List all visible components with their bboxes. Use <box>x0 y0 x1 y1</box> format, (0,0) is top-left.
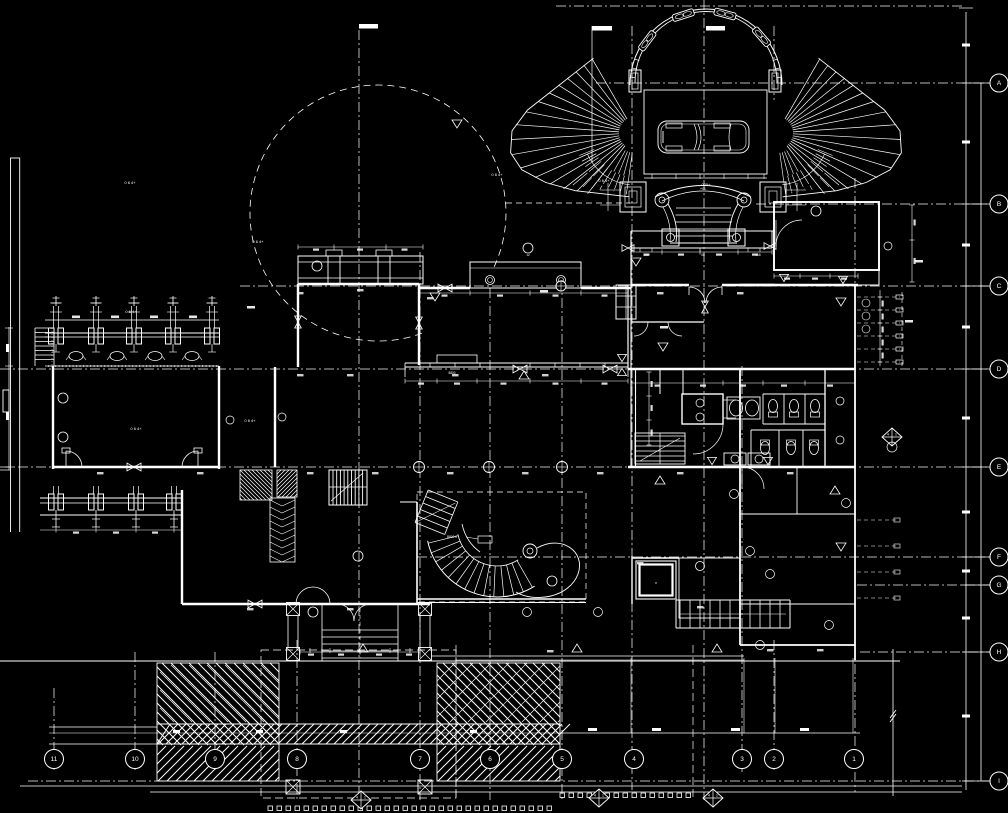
svg-text:0 6 4+: 0 6 4+ <box>244 418 256 423</box>
svg-text:5: 5 <box>560 756 564 763</box>
svg-text:B800 0: B800 0 <box>447 535 457 539</box>
svg-text:0 6 4+: 0 6 4+ <box>125 309 137 314</box>
svg-text:v: v <box>655 580 657 585</box>
svg-text:1: 1 <box>364 796 366 800</box>
svg-text:1: 1 <box>895 433 897 437</box>
svg-text:4: 4 <box>356 796 358 800</box>
svg-text:D: D <box>997 366 1002 373</box>
svg-text:G: G <box>996 582 1001 589</box>
svg-text:6: 6 <box>488 756 492 763</box>
svg-text:E: E <box>997 464 1002 471</box>
svg-text:F: F <box>997 554 1001 561</box>
svg-text:+01: +01 <box>700 187 706 191</box>
svg-text:1: 1 <box>602 794 604 798</box>
svg-text:0 6 4+: 0 6 4+ <box>491 172 503 177</box>
svg-text:1: 1 <box>716 794 718 798</box>
svg-text:A: A <box>997 80 1002 87</box>
svg-text:C: C <box>997 283 1002 290</box>
svg-text:0 6 4+: 0 6 4+ <box>124 180 136 185</box>
svg-text:B: B <box>997 201 1001 208</box>
svg-text:10: 10 <box>131 756 139 763</box>
svg-text:I: I <box>998 778 1000 785</box>
svg-text:9: 9 <box>213 756 217 763</box>
svg-text:0 6 4+: 0 6 4+ <box>252 239 264 244</box>
svg-text:3: 3 <box>740 756 744 763</box>
svg-text:2: 2 <box>772 756 776 763</box>
svg-text:08: 08 <box>701 253 705 257</box>
svg-text:11: 11 <box>51 756 58 763</box>
svg-text:H: H <box>997 649 1002 656</box>
svg-text:1: 1 <box>852 756 856 763</box>
svg-text:4: 4 <box>708 794 710 798</box>
svg-text:0 6 4+: 0 6 4+ <box>598 178 610 183</box>
svg-text:12: 12 <box>526 253 530 257</box>
svg-text:4: 4 <box>632 756 636 763</box>
svg-text:7: 7 <box>418 756 422 763</box>
svg-text:0 6 4+: 0 6 4+ <box>130 426 142 431</box>
svg-text:4: 4 <box>887 433 889 437</box>
svg-text:4: 4 <box>594 794 596 798</box>
svg-text:8: 8 <box>295 756 299 763</box>
